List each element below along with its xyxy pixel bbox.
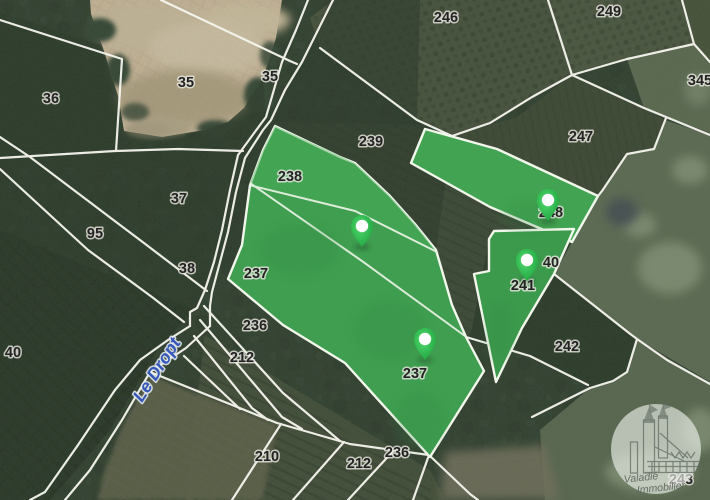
svg-text:238: 238 xyxy=(278,169,302,185)
svg-text:212: 212 xyxy=(347,456,371,472)
svg-text:35: 35 xyxy=(178,75,194,91)
svg-text:37: 37 xyxy=(171,191,187,207)
svg-text:95: 95 xyxy=(87,226,103,242)
svg-text:40: 40 xyxy=(5,345,21,361)
svg-text:237: 237 xyxy=(244,266,268,282)
svg-text:239: 239 xyxy=(359,134,383,150)
svg-text:35: 35 xyxy=(262,69,278,85)
svg-text:247: 247 xyxy=(569,129,593,145)
svg-text:210: 210 xyxy=(255,449,279,465)
svg-text:249: 249 xyxy=(597,4,621,20)
svg-text:242: 242 xyxy=(555,339,579,355)
svg-text:236: 236 xyxy=(385,445,409,461)
svg-text:246: 246 xyxy=(434,10,458,26)
svg-text:237: 237 xyxy=(403,366,427,382)
svg-text:36: 36 xyxy=(43,91,59,107)
svg-text:236: 236 xyxy=(243,318,267,334)
svg-text:212: 212 xyxy=(230,350,254,366)
svg-text:38: 38 xyxy=(179,261,195,277)
svg-text:40: 40 xyxy=(543,255,559,271)
svg-text:345: 345 xyxy=(688,73,710,89)
